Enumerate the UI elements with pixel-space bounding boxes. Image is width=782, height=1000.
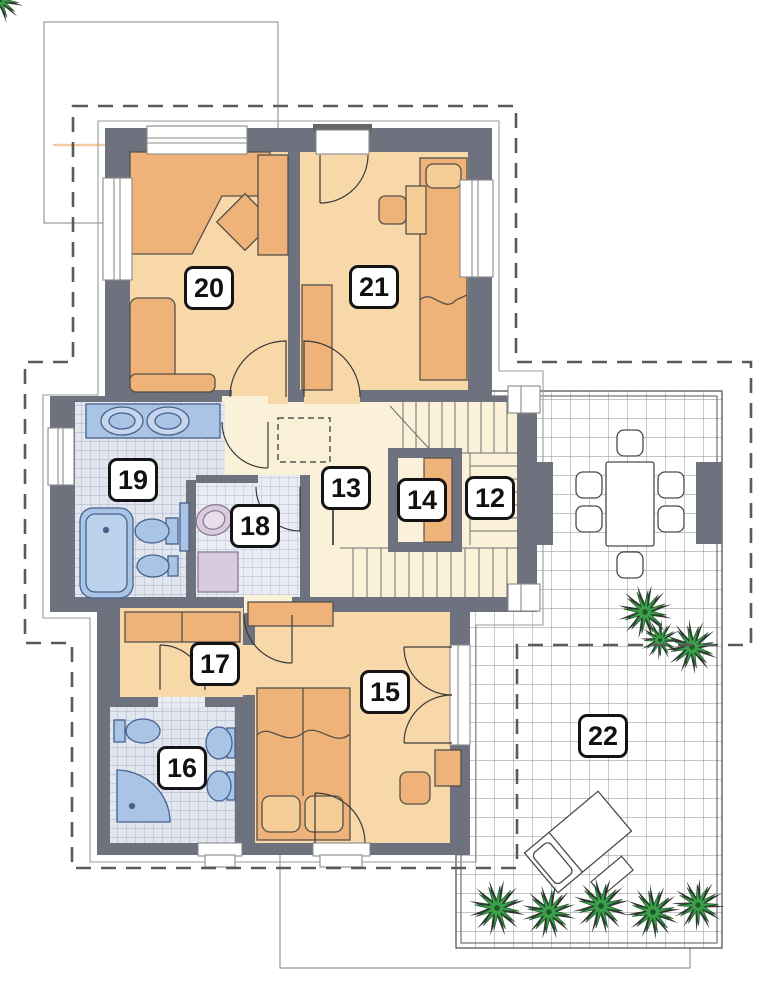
terrace-pillar [696, 462, 722, 544]
pillow-left [262, 796, 300, 832]
room-label-17: 17 [190, 642, 240, 686]
chair-15 [400, 772, 430, 804]
pillow [426, 164, 461, 188]
pillow-right [305, 796, 343, 832]
sink-16 [206, 727, 232, 759]
window-20-left [103, 178, 132, 280]
window-stair-bottom [508, 584, 540, 611]
window-19-left [48, 428, 74, 485]
window-16-bottom [198, 843, 242, 856]
toilet-16 [126, 719, 160, 743]
window-20-top [147, 126, 247, 154]
french-door-15 [450, 645, 470, 745]
floor-plan-page: 20 21 19 18 13 14 12 17 16 15 22 [0, 0, 782, 1000]
toilet-tank-16 [114, 720, 125, 742]
door-15-sill [320, 855, 362, 867]
partition [180, 503, 189, 551]
dresser-15 [248, 602, 333, 626]
window-16-sill [205, 855, 235, 867]
room-label-21: 21 [349, 265, 399, 309]
window-stair-top [508, 386, 540, 413]
nightstand-15 [435, 750, 461, 786]
bidet-16 [207, 771, 231, 801]
room-label-13: 13 [321, 466, 371, 510]
sofa-side [130, 374, 215, 392]
wardrobe-20 [258, 155, 288, 255]
room-label-19: 19 [108, 458, 158, 502]
bidet [137, 555, 169, 577]
chair-21 [379, 196, 406, 224]
door-15-bottom-opening [313, 843, 370, 856]
room-label-15: 15 [360, 670, 410, 714]
toilet-bowl [135, 519, 169, 543]
room-label-14: 14 [397, 478, 447, 522]
wardrobe-21 [302, 285, 332, 390]
room-label-16: 16 [157, 746, 207, 790]
window-21-right [460, 180, 493, 277]
room-label-18: 18 [230, 504, 280, 548]
room-label-12: 12 [465, 476, 515, 520]
washing-machine [198, 552, 238, 592]
balcony-door-21 [316, 130, 369, 154]
room-label-22: 22 [578, 714, 628, 758]
desk-21 [406, 186, 426, 234]
room-label-20: 20 [184, 266, 234, 310]
